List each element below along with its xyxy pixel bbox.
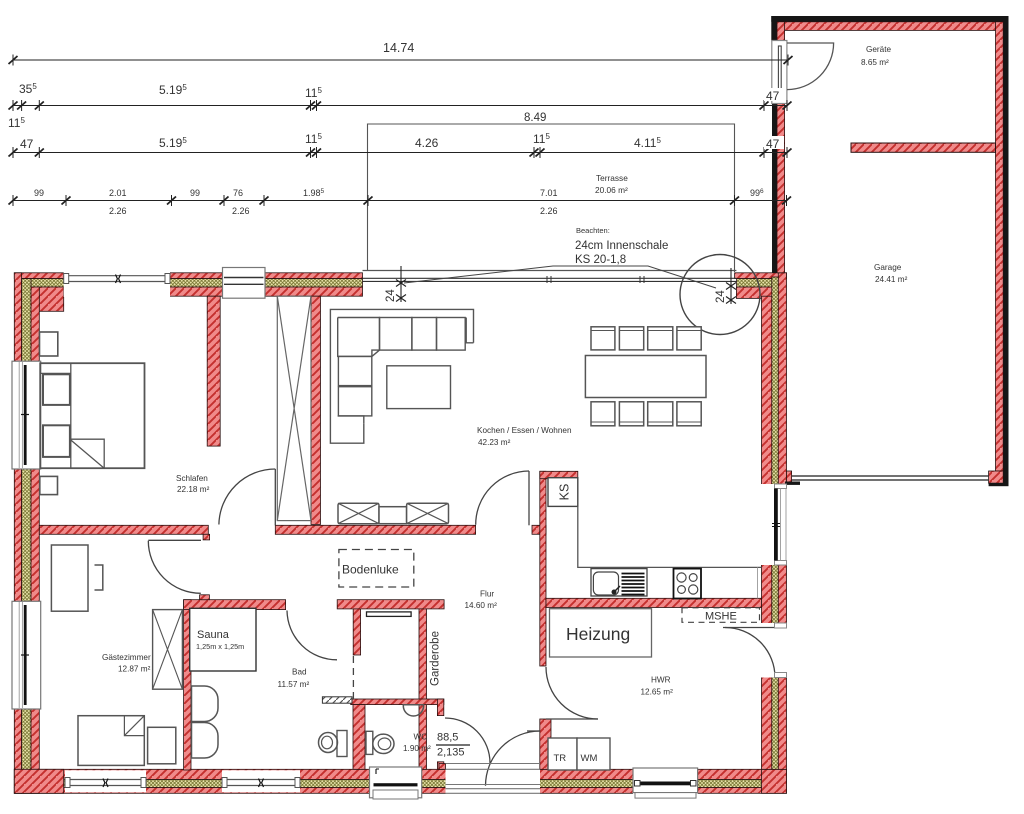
svg-text:47: 47	[20, 137, 34, 151]
svg-text:2.26: 2.26	[232, 206, 250, 216]
svg-text:8.65 m²: 8.65 m²	[861, 58, 889, 67]
svg-text:24.41 m²: 24.41 m²	[875, 275, 908, 284]
svg-text:KS: KS	[558, 484, 572, 501]
svg-text:Bad: Bad	[292, 668, 307, 677]
svg-text:2,135: 2,135	[437, 747, 465, 759]
svg-text:Geräte: Geräte	[866, 45, 891, 54]
svg-text:47: 47	[766, 137, 780, 151]
svg-text:Kochen / Essen / Wohnen: Kochen / Essen / Wohnen	[477, 426, 572, 435]
svg-text:22.18 m²: 22.18 m²	[177, 485, 210, 494]
svg-text:WM: WM	[581, 753, 598, 764]
svg-text:KS 20-1,8: KS 20-1,8	[575, 254, 626, 266]
svg-text:1.90 m²: 1.90 m²	[403, 744, 431, 753]
svg-text:TR: TR	[554, 753, 567, 764]
svg-text:Garage: Garage	[874, 263, 902, 272]
svg-text:12.65 m²: 12.65 m²	[641, 688, 674, 697]
svg-text:HWR: HWR	[651, 676, 671, 685]
svg-text:4.26: 4.26	[415, 136, 439, 150]
svg-text:WC: WC	[414, 733, 428, 742]
svg-text:14.60 m²: 14.60 m²	[465, 601, 498, 610]
svg-text:Bodenluke: Bodenluke	[342, 563, 399, 577]
svg-text:8.49: 8.49	[524, 112, 546, 124]
svg-text:24: 24	[715, 290, 727, 303]
svg-text:Gästezimmer: Gästezimmer	[102, 653, 151, 662]
svg-text:11.57 m²: 11.57 m²	[278, 680, 310, 689]
svg-text:42.23 m²: 42.23 m²	[478, 438, 511, 447]
svg-text:Heizung: Heizung	[566, 624, 630, 644]
svg-text:76: 76	[233, 188, 243, 198]
svg-text:88,5: 88,5	[437, 732, 458, 744]
svg-text:99: 99	[190, 188, 200, 198]
svg-text:1,25m x 1,25m: 1,25m x 1,25m	[196, 642, 244, 651]
svg-text:99: 99	[34, 188, 44, 198]
svg-text:14.74: 14.74	[383, 41, 414, 55]
svg-text:2.01: 2.01	[109, 188, 127, 198]
svg-text:47: 47	[766, 89, 780, 103]
svg-text:Terrasse: Terrasse	[596, 173, 628, 183]
svg-text:Sauna: Sauna	[197, 629, 230, 641]
svg-text:24: 24	[385, 289, 397, 302]
svg-text:12.87 m²: 12.87 m²	[118, 665, 151, 674]
svg-text:24cm Innenschale: 24cm Innenschale	[575, 240, 668, 252]
svg-text:20.06 m²: 20.06 m²	[595, 185, 628, 195]
svg-text:7.01: 7.01	[540, 188, 558, 198]
svg-text:2.26: 2.26	[109, 206, 127, 216]
svg-text:2.26: 2.26	[540, 206, 558, 216]
svg-text:Flur: Flur	[480, 590, 494, 599]
svg-text:Beachten:: Beachten:	[576, 226, 610, 235]
svg-text:Schlafen: Schlafen	[176, 474, 208, 483]
svg-text:Garderobe: Garderobe	[430, 631, 442, 686]
svg-text:MSHE: MSHE	[705, 611, 737, 623]
